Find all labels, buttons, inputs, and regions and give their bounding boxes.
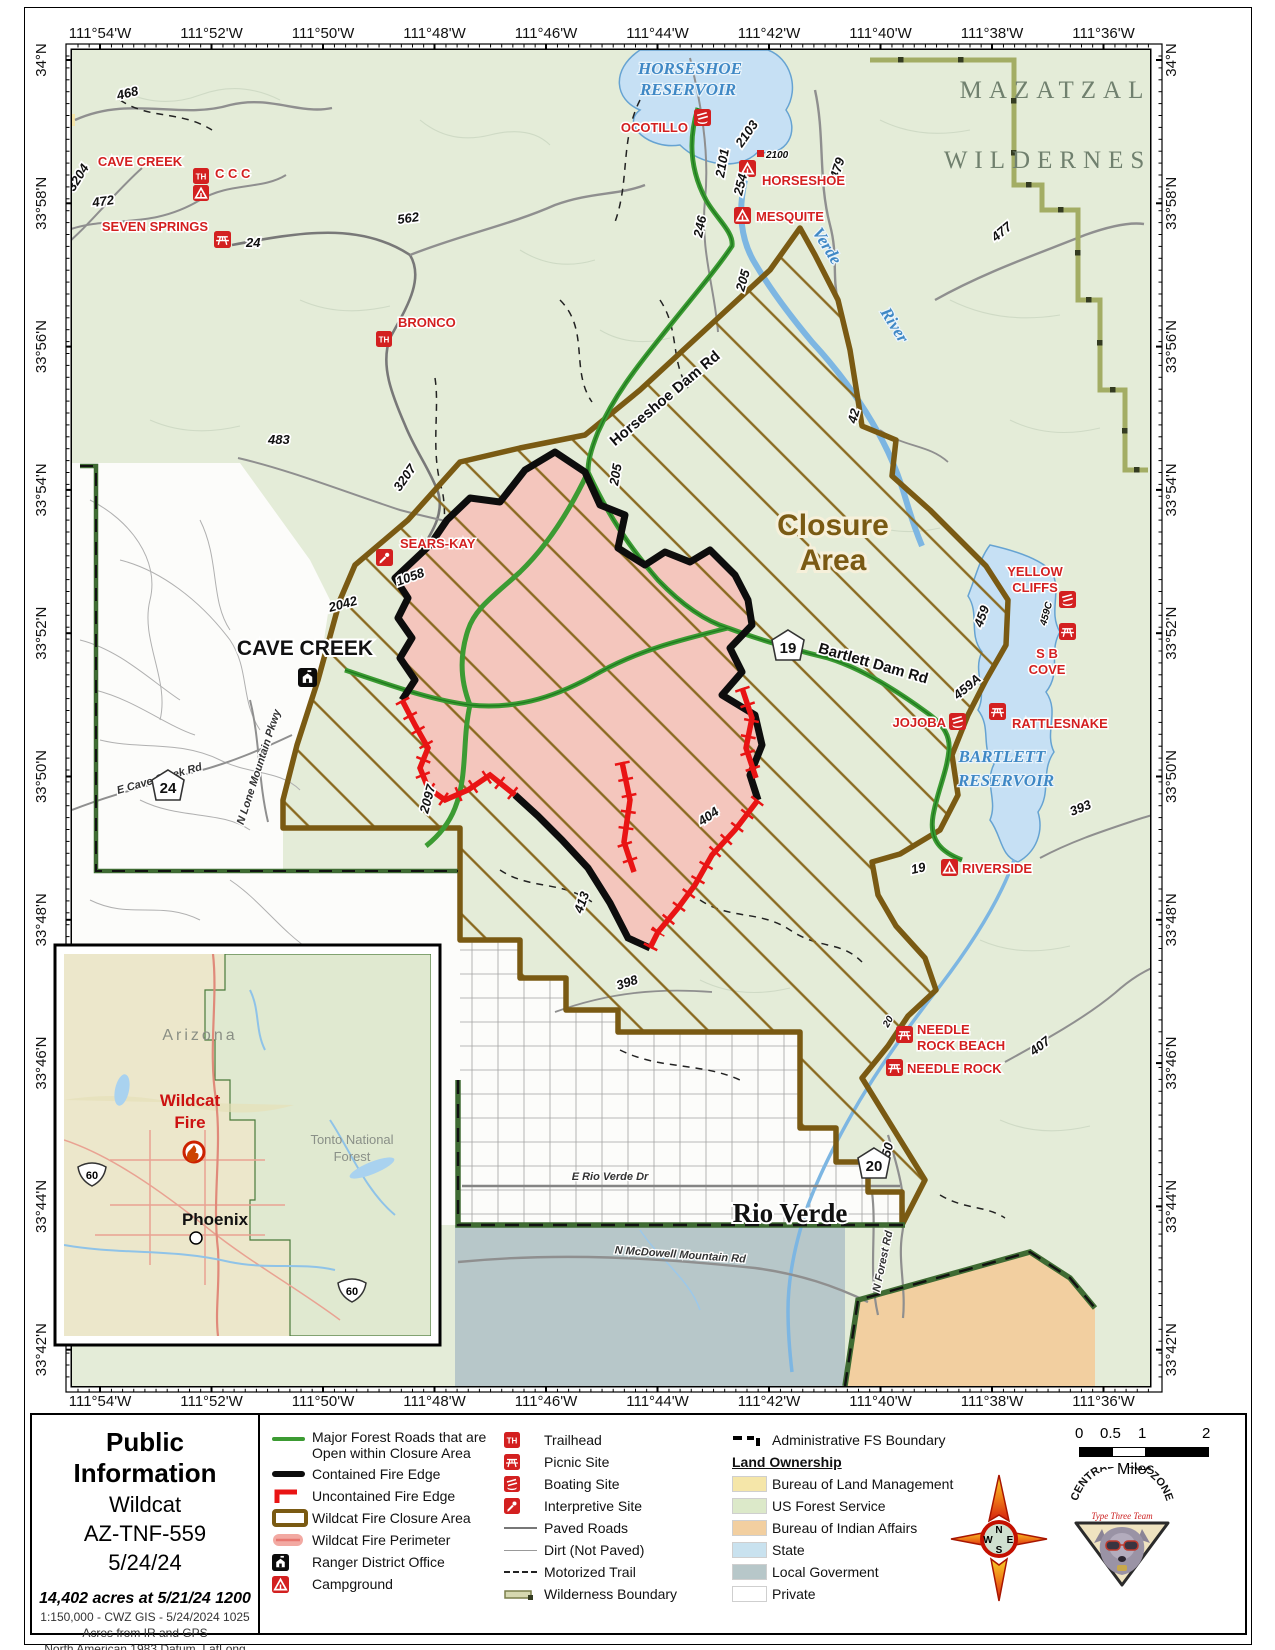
legend-picnic: Picnic Site	[504, 1451, 677, 1473]
trailhead-icon	[504, 1432, 520, 1448]
perimeter-symbol	[272, 1532, 304, 1548]
incident-number: AZ-TNF-559	[32, 1521, 258, 1547]
logo-arc-text: CENTRAL WEST ZONE	[1069, 1467, 1175, 1502]
boating-icon	[504, 1476, 520, 1492]
legend-contained: Contained Fire Edge	[272, 1463, 497, 1485]
legend-col-3: Administrative FS Boundary Land Ownershi…	[732, 1429, 953, 1605]
map-date: 5/24/24	[32, 1550, 258, 1576]
legend-col-1: Major Forest Roads that are Open within …	[272, 1429, 497, 1595]
compass-w: W	[983, 1535, 993, 1546]
fire-name: Wildcat	[32, 1492, 258, 1518]
legend-uncontained: Uncontained Fire Edge	[272, 1485, 497, 1507]
title-box: Public Information Wildcat AZ-TNF-559 5/…	[32, 1415, 260, 1633]
legend-roads-open: Major Forest Roads that are Open within …	[272, 1429, 497, 1463]
legend-local: Local Goverment	[732, 1561, 953, 1583]
legend-dirt: Dirt (Not Paved)	[504, 1539, 677, 1561]
svg-text:CENTRAL WEST ZONE: CENTRAL WEST ZONE	[1069, 1467, 1175, 1502]
scale-bar-graphic	[1079, 1447, 1209, 1457]
legend-closure: Wildcat Fire Closure Area	[272, 1507, 497, 1529]
legend-usfs: US Forest Service	[732, 1495, 953, 1517]
interpretive-icon	[504, 1498, 520, 1514]
legend-col-2: Trailhead Picnic Site Boating Site Inter…	[504, 1429, 677, 1605]
picnic-icon	[504, 1454, 520, 1470]
compass-e: E	[1007, 1535, 1014, 1546]
map-sheet: TH 111°54'W111°54'W34°N34°N111°52'W111°5…	[0, 0, 1275, 1650]
logo-sub-text: Type Three Team	[1091, 1511, 1153, 1521]
compass-rose: N E S W	[947, 1473, 1051, 1603]
legend-state: State	[732, 1539, 953, 1561]
acreage: 14,402 acres at 5/21/24 1200	[32, 1590, 258, 1608]
info-panel: Public Information Wildcat AZ-TNF-559 5/…	[30, 1413, 1247, 1635]
compass-s: S	[996, 1545, 1003, 1556]
page-title: Public Information	[32, 1427, 258, 1489]
uncontained-symbol	[272, 1487, 302, 1505]
legend-admin: Administrative FS Boundary	[732, 1429, 953, 1451]
legend-interpretive: Interpretive Site	[504, 1495, 677, 1517]
legend-trailhead: Trailhead	[504, 1429, 677, 1451]
sheet-border	[24, 7, 1252, 1645]
legend-motorized: Motorized Trail	[504, 1561, 677, 1583]
cwz-team-logo: CENTRAL WEST ZONE Type Three Team	[1062, 1467, 1182, 1591]
legend-bia: Bureau of Indian Affairs	[732, 1517, 953, 1539]
legend-paved: Paved Roads	[504, 1517, 677, 1539]
legend-wilderness: Wilderness Boundary	[504, 1583, 677, 1605]
admin-boundary-symbol	[732, 1434, 762, 1446]
legend-private: Private	[732, 1583, 953, 1605]
scale-note: 1:150,000 - CWZ GIS - 5/24/2024 1025	[32, 1610, 258, 1624]
legend-boating: Boating Site	[504, 1473, 677, 1495]
scale-2: 2	[1202, 1425, 1210, 1442]
datum-note: North American 1983 Datum. LatLong	[32, 1642, 258, 1650]
scale-0: 0	[1075, 1425, 1083, 1442]
ranger-office-icon	[272, 1554, 289, 1571]
scale-1: 1	[1138, 1425, 1146, 1442]
legend-campground: Campground	[272, 1573, 497, 1595]
acres-note: Acres from IR and GPS	[32, 1626, 258, 1640]
legend-blm: Bureau of Land Management	[732, 1473, 953, 1495]
legend-land-ownership-header: Land Ownership	[732, 1451, 953, 1473]
campground-icon	[272, 1576, 289, 1593]
logo-wolf	[1094, 1527, 1150, 1575]
legend-ranger: Ranger District Office	[272, 1551, 497, 1573]
compass-n: N	[995, 1525, 1002, 1536]
scale-05: 0.5	[1100, 1425, 1121, 1442]
legend-perimeter: Wildcat Fire Perimeter	[272, 1529, 497, 1551]
wilderness-symbol	[504, 1587, 537, 1601]
